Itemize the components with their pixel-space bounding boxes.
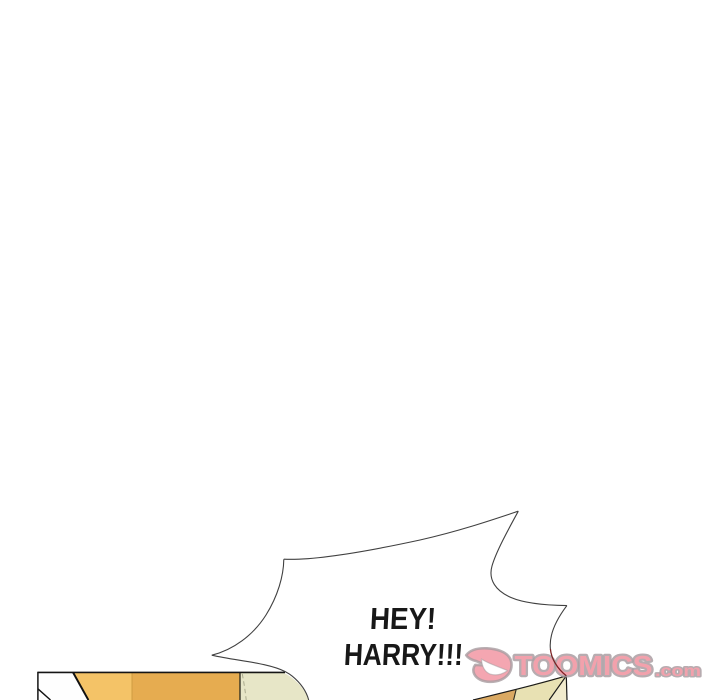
svg-text:.com: .com: [655, 663, 701, 680]
svg-text:TOOMICS: TOOMICS: [515, 650, 653, 681]
svg-text:HARRY!!!: HARRY!!!: [343, 638, 464, 672]
svg-text:HEY!: HEY!: [369, 602, 437, 636]
